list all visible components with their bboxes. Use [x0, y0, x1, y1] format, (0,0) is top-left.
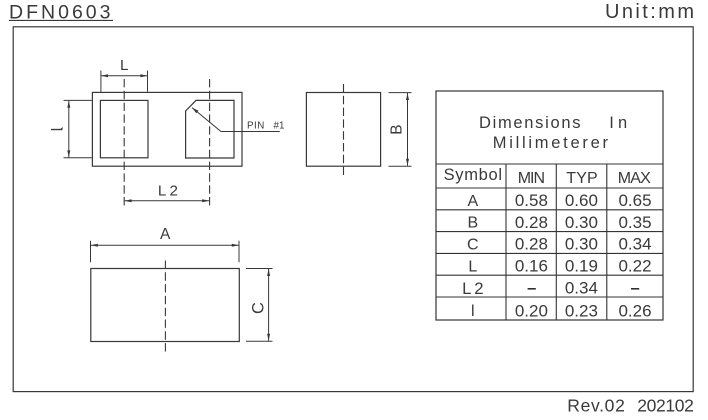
svg-text:Unit:mm: Unit:mm	[605, 1, 694, 23]
svg-text:MIN: MIN	[518, 170, 545, 187]
svg-text:0.58: 0.58	[515, 191, 548, 210]
svg-text:0.34: 0.34	[565, 279, 598, 298]
svg-text:C: C	[467, 237, 479, 254]
svg-text:B: B	[389, 124, 406, 134]
svg-text:0.35: 0.35	[618, 213, 651, 232]
svg-text:L: L	[468, 258, 477, 275]
svg-text:0.19: 0.19	[565, 256, 598, 275]
svg-text:Dimensions: Dimensions	[479, 114, 581, 132]
svg-text:B: B	[467, 215, 478, 232]
svg-text:A: A	[160, 226, 171, 243]
svg-text:TYP: TYP	[566, 170, 597, 187]
svg-text:0.65: 0.65	[618, 191, 651, 210]
svg-text:0.20: 0.20	[515, 301, 548, 320]
svg-text:0.22: 0.22	[618, 256, 651, 275]
svg-text:0.28: 0.28	[515, 213, 548, 232]
svg-text:0.26: 0.26	[618, 301, 651, 320]
svg-text:0.16: 0.16	[515, 256, 548, 275]
svg-text:0.60: 0.60	[565, 191, 598, 210]
svg-text:A: A	[467, 193, 478, 210]
svg-text:l: l	[471, 303, 475, 320]
svg-text:#1: #1	[274, 120, 285, 131]
svg-text:C: C	[250, 302, 268, 314]
svg-text:PIN: PIN	[247, 120, 264, 131]
svg-text:l: l	[49, 128, 66, 131]
svg-text:202102: 202102	[637, 396, 694, 416]
svg-text:Rev.02: Rev.02	[567, 396, 625, 416]
svg-text:0.30: 0.30	[565, 235, 598, 254]
svg-text:0.23: 0.23	[565, 301, 598, 320]
svg-text:In: In	[609, 114, 627, 132]
svg-text:0.28: 0.28	[515, 235, 548, 254]
svg-text:Symbol: Symbol	[444, 166, 503, 184]
svg-text:MAX: MAX	[618, 170, 651, 187]
svg-text:0.30: 0.30	[565, 213, 598, 232]
svg-text:Millimeterer: Millimeterer	[493, 134, 609, 152]
svg-text:0.34: 0.34	[618, 235, 651, 254]
svg-text:L: L	[120, 57, 128, 74]
